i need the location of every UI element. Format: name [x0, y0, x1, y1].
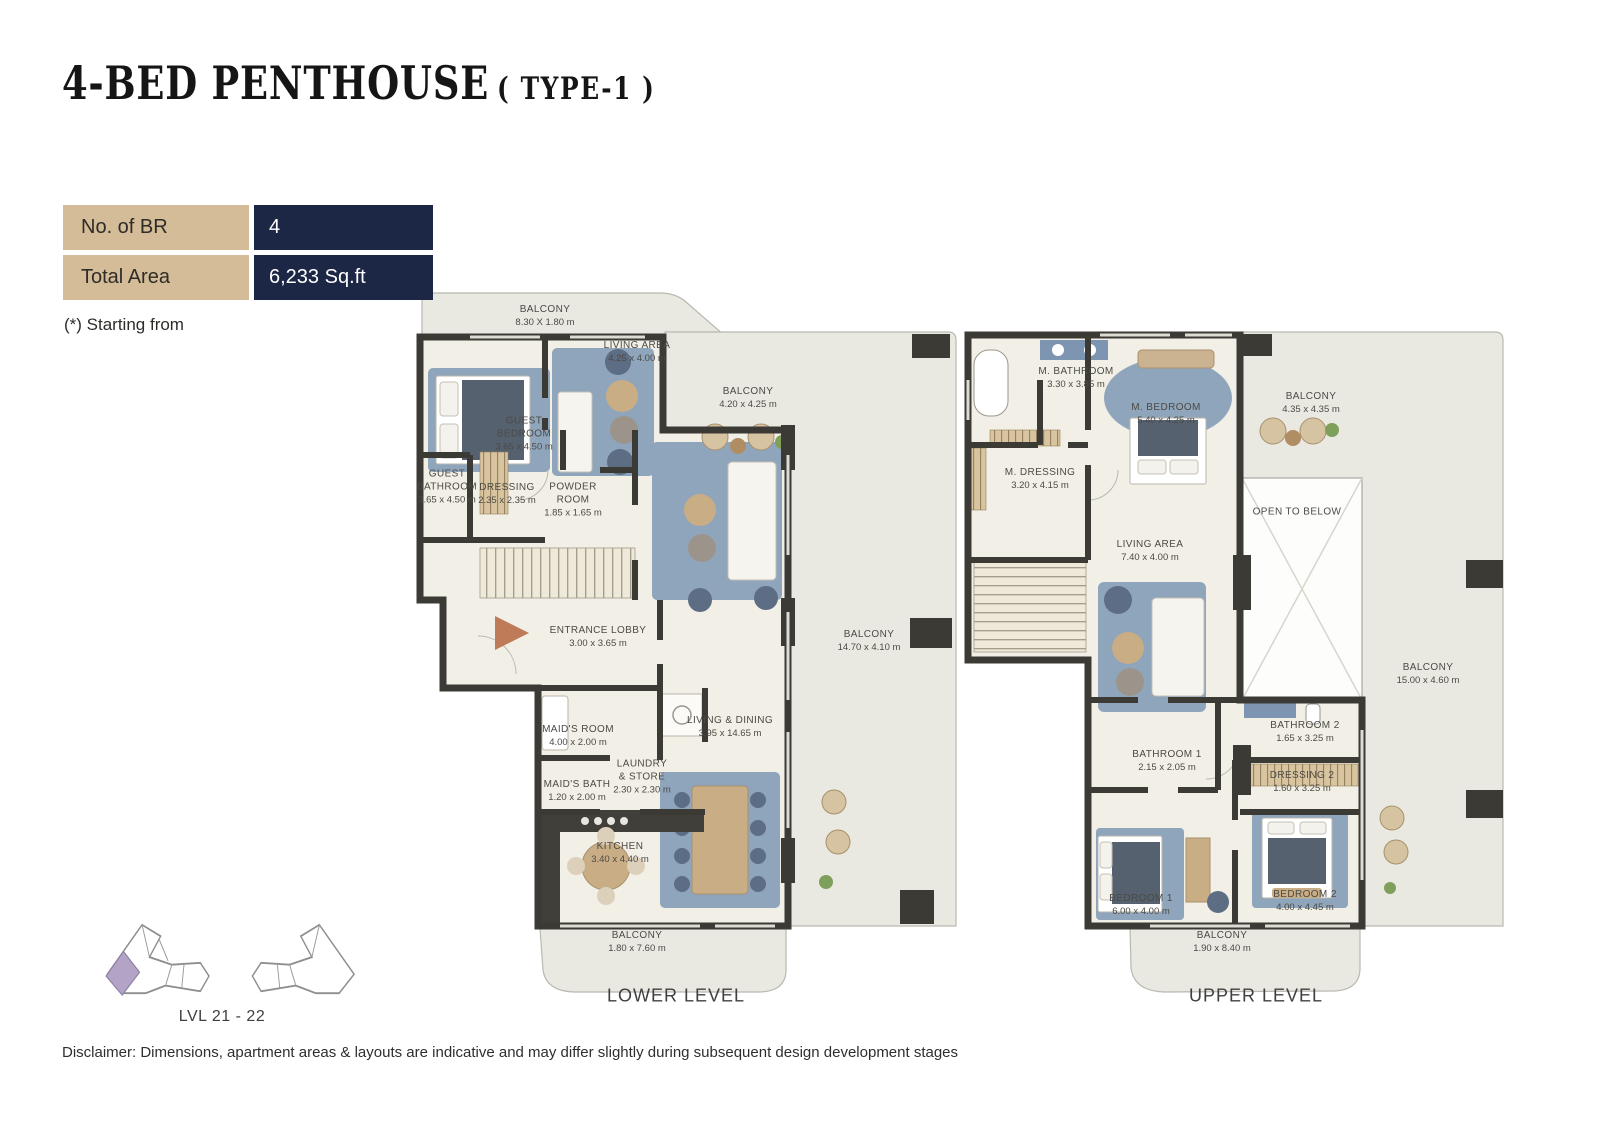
- table-row: No. of BR 4: [63, 205, 433, 250]
- key-plan: [106, 925, 354, 995]
- br-value: 4: [254, 205, 433, 250]
- room-label: M. BEDROOM5.40 x 4.25 m: [1111, 401, 1221, 427]
- lower-level-caption: LOWER LEVEL: [607, 986, 745, 1007]
- room-label: M. BATHROOM3.30 x 3.85 m: [1021, 365, 1131, 391]
- room-label: KITCHEN3.40 x 4.40 m: [570, 840, 670, 866]
- room-label: GUEST BEDROOM3.65 x 4.50 m: [488, 414, 560, 453]
- br-label: No. of BR: [63, 205, 249, 250]
- room-label: LIVING AREA4.25 x 4.00 m: [577, 339, 697, 365]
- room-label: BALCONY15.00 x 4.60 m: [1397, 661, 1460, 687]
- room-label: BATHROOM 12.15 x 2.05 m: [1117, 748, 1217, 774]
- area-label: Total Area: [63, 255, 249, 300]
- disclaimer-text: Disclaimer: Dimensions, apartment areas …: [62, 1044, 958, 1061]
- unit-info-table: No. of BR 4 Total Area 6,233 Sq.ft: [63, 205, 433, 305]
- title-main: 4-BED PENTHOUSE: [62, 56, 489, 110]
- room-label: ENTRANCE LOBBY3.00 x 3.65 m: [533, 624, 663, 650]
- room-label: LIVING & DINING3.95 x 14.65 m: [665, 714, 795, 740]
- page-title: 4-BED PENTHOUSE( TYPE-1 ): [62, 56, 656, 110]
- room-label: MAID'S BATH1.20 x 2.00 m: [530, 778, 625, 804]
- area-value: 6,233 Sq.ft: [254, 255, 433, 300]
- floor-plan-page: 4-BED PENTHOUSE( TYPE-1 ) No. of BR 4 To…: [0, 0, 1600, 1132]
- room-label: BEDROOM 16.00 x 4.00 m: [1091, 892, 1191, 918]
- room-label: OPEN TO BELOW: [1237, 506, 1357, 519]
- room-label: BALCONY14.70 x 4.10 m: [838, 628, 901, 654]
- room-label: BATHROOM 21.65 x 3.25 m: [1255, 719, 1355, 745]
- upper-level-caption: UPPER LEVEL: [1189, 986, 1323, 1007]
- room-label: BALCONY4.20 x 4.25 m: [719, 385, 777, 411]
- room-label: LIVING AREA7.40 x 4.00 m: [1095, 538, 1205, 564]
- room-label: BALCONY1.90 x 8.40 m: [1193, 929, 1251, 955]
- key-plan-level-label: LVL 21 - 22: [179, 1008, 265, 1026]
- room-label: BEDROOM 24.00 x 4.45 m: [1255, 888, 1355, 914]
- table-row: Total Area 6,233 Sq.ft: [63, 255, 433, 300]
- room-label: M. DRESSING3.20 x 4.15 m: [985, 466, 1095, 492]
- starting-from-note: (*) Starting from: [64, 315, 184, 335]
- room-label: MAID'S ROOM4.00 x 2.00 m: [531, 723, 626, 749]
- floor-plan-drawing: [0, 0, 1600, 1132]
- room-label: DRESSING2.35 x 2.35 m: [462, 481, 552, 507]
- room-label: POWDER ROOM1.85 x 1.65 m: [543, 480, 603, 519]
- title-type: ( TYPE-1 ): [497, 71, 655, 107]
- room-label: BALCONY4.35 x 4.35 m: [1282, 390, 1340, 416]
- room-label: DRESSING 21.60 x 3.25 m: [1252, 769, 1352, 795]
- room-label: BALCONY1.80 x 7.60 m: [608, 929, 666, 955]
- room-label: BALCONY8.30 X 1.80 m: [515, 303, 574, 329]
- entrance-arrow-icon: [495, 616, 529, 650]
